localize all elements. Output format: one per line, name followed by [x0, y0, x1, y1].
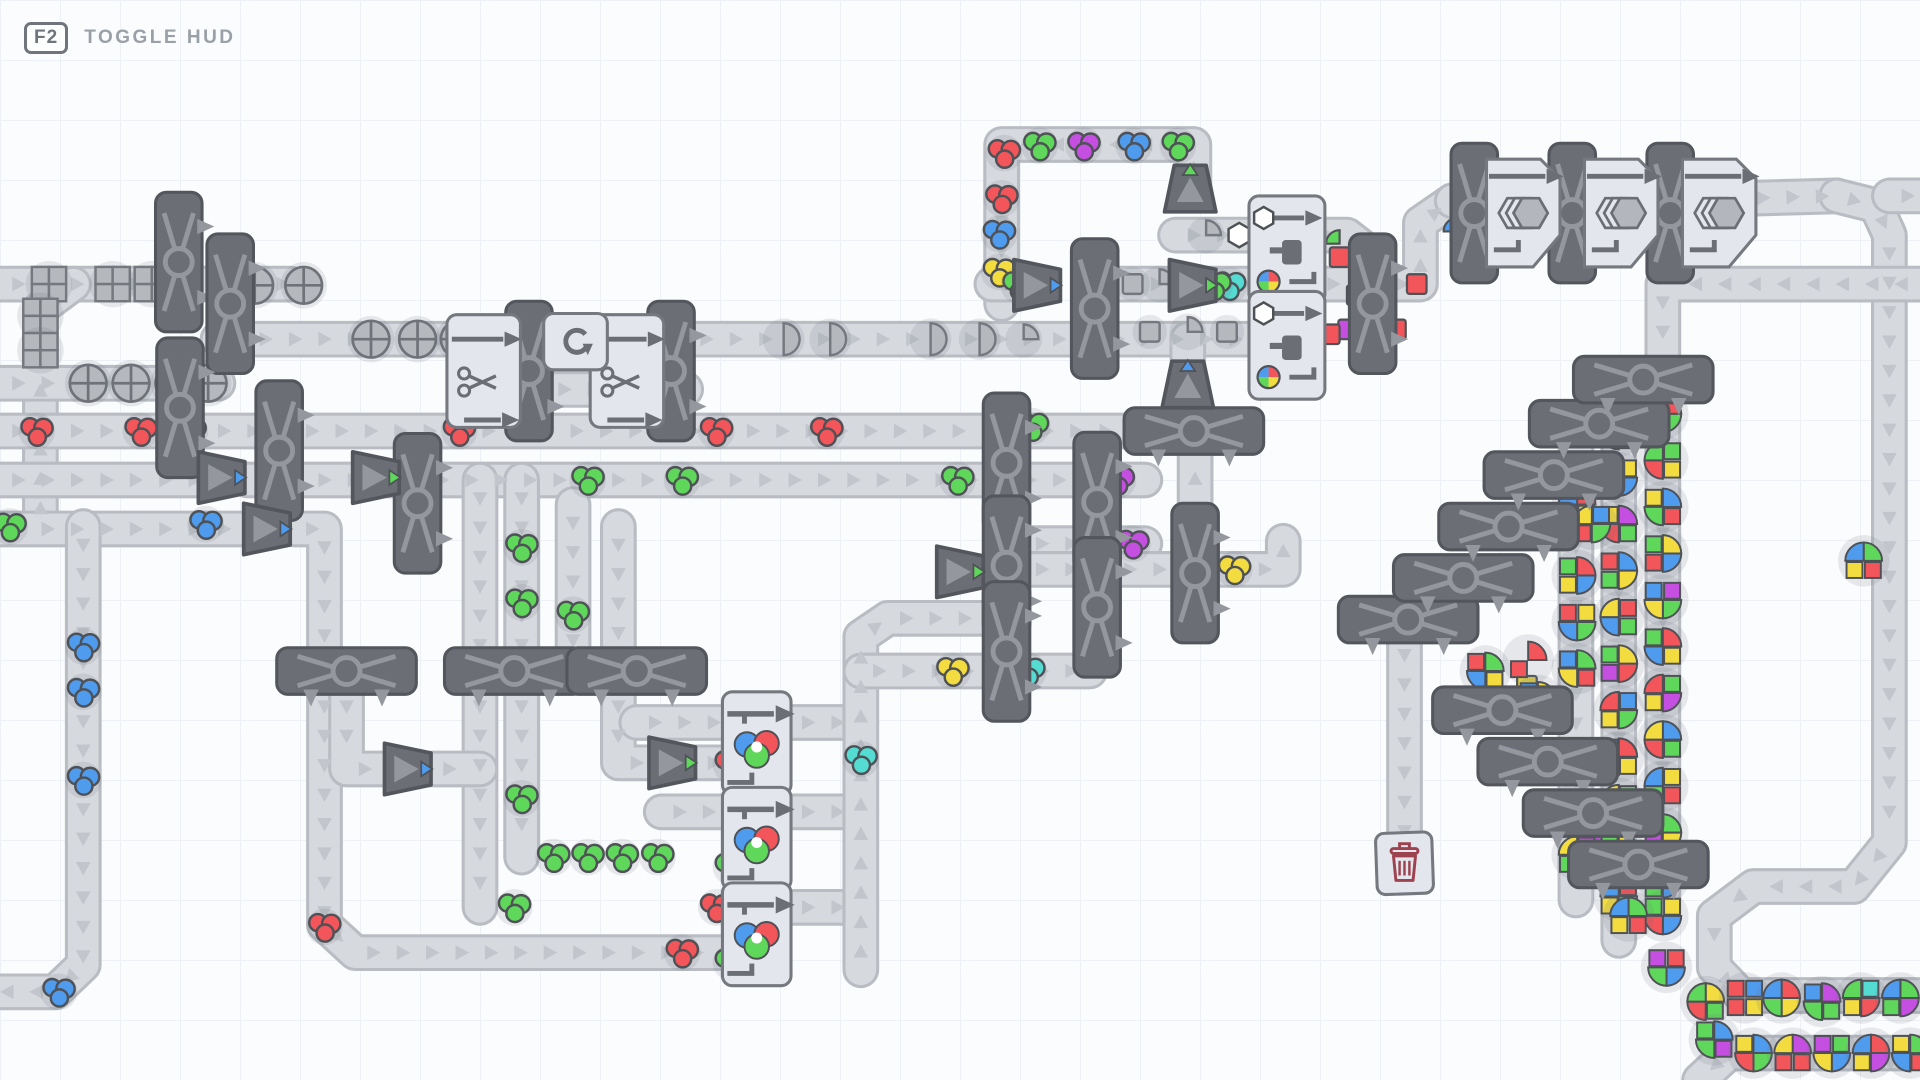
filter-machine[interactable] [1162, 360, 1213, 408]
shape-item-cs [1330, 247, 1350, 267]
shape-item-tre [1216, 551, 1253, 588]
shape-item-tre [65, 673, 102, 710]
filter-machine[interactable] [937, 546, 985, 597]
rotator-machine[interactable] [544, 313, 608, 369]
filter-machine[interactable] [1164, 164, 1215, 212]
shape-item-cs [1407, 274, 1427, 294]
hud-overlay: F2 TOGGLE HUD [24, 22, 236, 54]
color-mixer-machine[interactable] [722, 883, 794, 986]
shape-item-gs [1133, 315, 1167, 349]
shape-item-tre [664, 462, 701, 499]
toggle-hud-label: TOGGLE HUD [84, 27, 235, 49]
shape-item-wh [1229, 223, 1250, 247]
filter-machine[interactable] [384, 743, 432, 794]
shape-item-q4 [1838, 535, 1889, 586]
shape-item-tre [503, 584, 540, 621]
shape-item-gh [959, 318, 1001, 360]
filter-machine[interactable] [198, 452, 246, 503]
shape-item-q4 [1593, 684, 1644, 735]
shape-item-q4 [1637, 528, 1688, 579]
shape-item-q4 [1637, 481, 1688, 532]
shape-item-tre [569, 462, 606, 499]
shape-item-tre [981, 216, 1018, 253]
shape-item-ck [17, 327, 64, 374]
filter-machine[interactable] [244, 503, 292, 554]
shape-item-tre [503, 529, 540, 566]
hotkey-badge: F2 [24, 22, 68, 54]
shape-item-tre [496, 889, 533, 926]
shape-item-q4 [1637, 667, 1688, 718]
shape-item-tre [569, 839, 606, 876]
shape-item-tre [604, 839, 641, 876]
shape-item-gh [910, 318, 952, 360]
shape-item-tre [187, 506, 224, 543]
shape-item-cx [108, 360, 155, 407]
shape-item-cx [65, 360, 112, 407]
color-mixer-machine[interactable] [722, 692, 794, 795]
shape-item-tre [1021, 127, 1058, 164]
shape-item-tre [939, 462, 976, 499]
shape-item-gq [1005, 321, 1042, 358]
shape-item-q4 [1637, 714, 1688, 765]
painter-machine[interactable] [1249, 196, 1325, 304]
shape-item-tre [842, 741, 879, 778]
shape-item-q4 [1641, 942, 1692, 993]
shape-item-cx [280, 262, 327, 309]
shape-item-gh [809, 318, 851, 360]
shape-item-gq [1188, 217, 1225, 254]
shape-item-tre [1116, 127, 1153, 164]
cutter-machine[interactable] [447, 315, 522, 428]
shape-item-tre [934, 653, 971, 690]
shape-item-q4 [1603, 890, 1654, 941]
filter-machine[interactable] [649, 737, 697, 788]
shape-item-cx [394, 316, 441, 363]
shape-item-tre [65, 762, 102, 799]
filter-machine[interactable] [1169, 260, 1217, 311]
shape-item-cx [348, 316, 395, 363]
filter-machine[interactable] [353, 452, 401, 503]
shape-item-tre [983, 180, 1020, 217]
game-canvas[interactable] [0, 0, 1920, 1080]
shape-item-tre [639, 839, 676, 876]
shape-item-q4 [1551, 550, 1602, 601]
color-mixer-machine[interactable] [722, 787, 794, 890]
shape-item-tre [808, 413, 845, 450]
shape-item-tre [664, 934, 701, 971]
shape-item-tre [555, 596, 592, 633]
shape-item-q4 [1637, 621, 1688, 672]
shape-item-tre [306, 909, 343, 946]
shape-item-tre [1065, 127, 1102, 164]
shape-item-gs [1210, 315, 1244, 349]
shape-item-tre [18, 413, 55, 450]
shape-item-tre [698, 413, 735, 450]
shape-item-tre [65, 628, 102, 665]
shape-item-q4 [1551, 596, 1602, 647]
shape-item-tre [986, 135, 1023, 172]
shape-item-q4 [1637, 574, 1688, 625]
trash-machine[interactable] [1375, 832, 1433, 895]
game-viewport: F2 TOGGLE HUD [0, 0, 1920, 1080]
painter-machine[interactable] [1249, 291, 1325, 399]
shape-item-tre [122, 413, 159, 450]
shape-item-tre [40, 973, 77, 1010]
shape-item-gq [1169, 313, 1206, 350]
shape-item-tre [535, 839, 572, 876]
filter-machine[interactable] [1014, 260, 1062, 311]
shape-item-gh [763, 318, 805, 360]
shape-item-tre [1160, 127, 1197, 164]
shape-item-tre [503, 780, 540, 817]
